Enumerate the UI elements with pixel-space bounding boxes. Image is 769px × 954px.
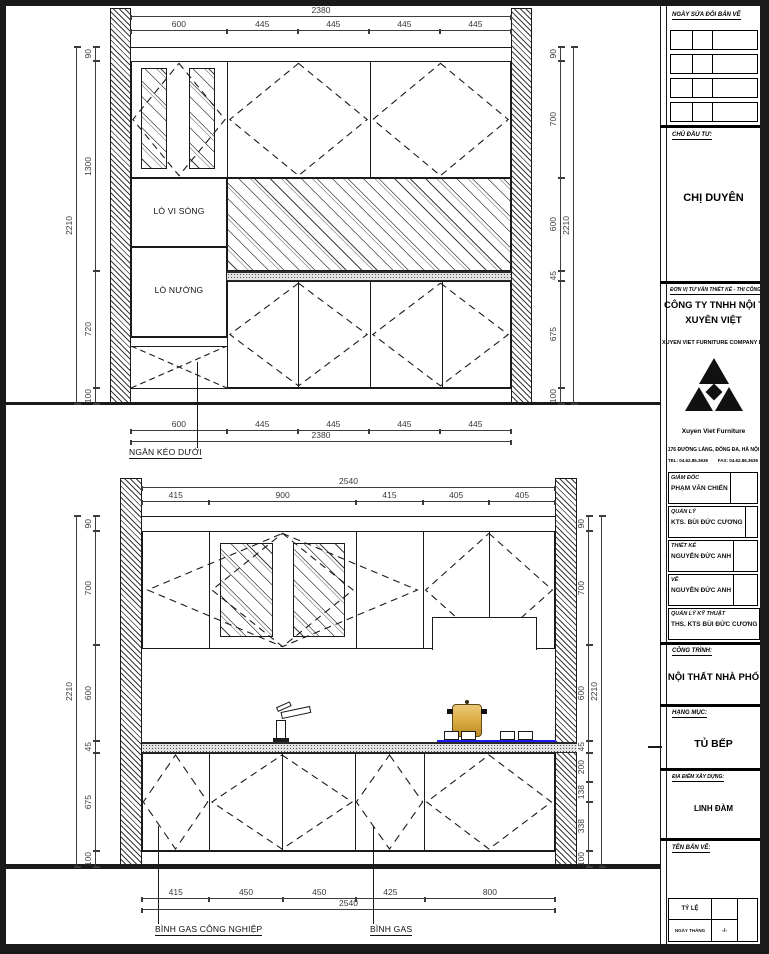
dim-value: 90 <box>546 47 560 61</box>
section-divider <box>660 125 760 128</box>
revision-cell <box>693 78 713 98</box>
company-name-en: XUYEN VIET FURNITURE COMPANY LIMITED <box>662 340 765 346</box>
staff-role-cell: THIẾT KẾNGUYỄN ĐỨC ANH <box>668 540 734 572</box>
countertop <box>142 742 577 753</box>
revision-header: NGÀY SỬA ĐỔI BẢN VẼ <box>672 12 741 20</box>
gas-burner-grate <box>461 731 476 740</box>
drawing-name-label: TÊN BẢN VẼ: <box>672 845 710 853</box>
left-wall <box>110 8 131 404</box>
gas-burner-grate <box>444 731 459 740</box>
gas-burner-grate <box>500 731 515 740</box>
revision-cell <box>693 30 713 50</box>
dim-value: 600 <box>81 645 95 741</box>
revision-row <box>670 54 758 74</box>
dim-value: 445 <box>440 19 511 30</box>
staff-role-cell: QUẢN LÝ KỸ THUẬTTHS. KTS BÙI ĐỨC CƯƠNG <box>668 608 760 640</box>
dim-value: 445 <box>227 19 298 30</box>
staff-role-cell: VẼNGUYỄN ĐỨC ANH <box>668 574 734 606</box>
titleblock-border <box>660 6 661 944</box>
door-swing-diamond <box>355 753 424 851</box>
dim-value: 675 <box>546 281 560 388</box>
dim-value: 405 <box>489 490 555 501</box>
date-value-cell: -/- <box>712 920 738 942</box>
dim-value: 600 <box>131 19 227 30</box>
door-swing-diamond <box>227 61 370 178</box>
staff-role: VẼ <box>671 577 731 583</box>
section-divider <box>660 838 760 841</box>
dim-row-total-width-bottom: 2540 <box>142 897 555 910</box>
signature-cell <box>731 472 758 504</box>
drawing-number-cell <box>738 898 758 942</box>
dim-value: 100 <box>546 388 560 404</box>
dim-col-right: 90 700 600 45 200 138 338 100 <box>574 516 589 867</box>
revision-cell <box>670 78 693 98</box>
dim-value: 90 <box>81 47 95 61</box>
company-name: CÔNG TY TNHH NỘI THẤT <box>664 300 763 311</box>
section-divider <box>660 768 760 771</box>
staff-row: QUẢN LÝKTS. BÙI ĐỨC CƯƠNG <box>668 506 758 538</box>
right-wall <box>511 8 532 404</box>
reference-tick <box>648 746 662 748</box>
plinth-line <box>131 388 511 389</box>
revision-cell <box>670 102 693 122</box>
ceiling-line <box>131 47 511 48</box>
date-label: NGÀY THÁNG <box>668 920 712 942</box>
client-name: CHỊ DUYÊN <box>667 192 760 204</box>
door-swing-diamond <box>370 281 511 388</box>
revision-row <box>670 30 758 50</box>
door-swing-diamond <box>424 753 554 851</box>
dim-col-left: 90 700 600 45 675 100 <box>81 516 96 867</box>
signature-cell <box>734 574 758 606</box>
revision-cell <box>713 78 758 98</box>
door-swing-diamond <box>370 61 511 178</box>
signature-cell <box>734 540 758 572</box>
dim-value: 2210 <box>560 47 573 404</box>
dim-value: 700 <box>81 531 95 645</box>
sheet-frame-right <box>760 0 769 954</box>
staff-role: QUẢN LÝ <box>671 509 743 515</box>
oven-label: LÒ NƯỚNG <box>131 285 227 295</box>
countertop <box>227 271 511 281</box>
staff-row: THIẾT KẾNGUYỄN ĐỨC ANH <box>668 540 758 572</box>
dim-value: 720 <box>81 271 95 388</box>
dim-value: 900 <box>209 490 355 501</box>
staff-role-cell: QUẢN LÝKTS. BÙI ĐỨC CƯƠNG <box>668 506 746 538</box>
revision-cell <box>693 102 713 122</box>
hood-notch <box>432 617 537 650</box>
dim-value: 2210 <box>62 516 76 867</box>
dim-value: 2210 <box>62 47 76 404</box>
dim-value: 445 <box>369 19 440 30</box>
staff-role-cell: GIÁM ĐỐCPHẠM VĂN CHIẾN <box>668 472 731 504</box>
shelf-line <box>131 337 227 338</box>
sheet-frame-bottom <box>0 944 769 954</box>
category-label: HẠNG MỤC: <box>672 710 707 718</box>
staff-role: GIÁM ĐỐC <box>671 475 728 481</box>
dim-value: 200 <box>574 753 588 782</box>
drawer-cross <box>131 346 227 388</box>
dim-value: 100 <box>81 388 95 404</box>
dim-value: 445 <box>298 19 369 30</box>
plinth-line <box>142 851 555 852</box>
section-divider <box>660 704 760 707</box>
staff-role: THIẾT KẾ <box>671 543 731 549</box>
company-logo <box>685 358 743 414</box>
scale-label: TỶ LỆ <box>668 898 712 920</box>
revision-cell <box>670 30 693 50</box>
door-swing-diamond <box>209 531 356 649</box>
drawing-sheet: 2380 600 445 445 445 445 LÒ VI SÓNG LÒ N… <box>0 0 769 954</box>
pot-handle <box>447 709 453 714</box>
pot-handle <box>481 709 487 714</box>
staff-row: GIÁM ĐỐCPHẠM VĂN CHIẾN <box>668 472 758 504</box>
microwave-label: LÒ VI SÓNG <box>131 206 227 216</box>
dim-row-segments-top: 415 900 415 405 405 <box>142 489 555 502</box>
consultant-label: ĐƠN VỊ TƯ VẤN THIẾT KẾ - THI CÔNG <box>670 287 761 295</box>
category-name: TỦ BẾP <box>667 738 760 750</box>
dim-value: 100 <box>574 851 588 867</box>
drawer-callout-label: NGĂN KÉO DƯỚI <box>129 447 202 459</box>
dim-value: 2380 <box>131 5 511 16</box>
door-swing-diamond <box>142 753 209 851</box>
revision-cell <box>670 54 693 74</box>
ceiling-line <box>142 516 555 517</box>
dim-value: 415 <box>356 490 423 501</box>
company-name: XUYÊN VIỆT <box>664 315 763 326</box>
company-fax: FAX: 04.62.86.3636 <box>714 458 758 463</box>
staff-row: QUẢN LÝ KỸ THUẬTTHS. KTS BÙI ĐỨC CƯƠNG <box>668 608 758 640</box>
dim-col-total-left: 2210 <box>62 47 77 404</box>
left-wall <box>120 478 142 867</box>
staff-row: VẼNGUYỄN ĐỨC ANH <box>668 574 758 606</box>
scale-date-table: TỶ LỆ NGÀY THÁNG -/- <box>668 898 758 942</box>
section-divider <box>660 281 760 284</box>
staff-name: NGUYỄN ĐỨC ANH <box>671 553 731 560</box>
dim-row-total-width-bottom: 2380 <box>131 429 511 442</box>
staff-name: THS. KTS BÙI ĐỨC CƯƠNG <box>671 621 757 628</box>
location-label: ĐỊA ĐIỂM XÂY DỰNG: <box>672 774 724 782</box>
revision-cell <box>713 30 758 50</box>
glass-panel-area <box>227 178 511 271</box>
dim-value: 2210 <box>588 516 601 867</box>
gas-industrial-callout-label: BÌNH GAS CÔNG NGHIỆP <box>155 924 262 936</box>
leader-line <box>158 826 159 924</box>
revision-row <box>670 78 758 98</box>
dim-col-right: 90 700 600 45 675 100 <box>546 47 561 404</box>
dim-value: 2540 <box>142 898 555 909</box>
dim-value: 405 <box>423 490 489 501</box>
dim-value: 100 <box>81 851 95 867</box>
door-swing-diamond <box>209 753 355 851</box>
scale-value-cell <box>712 898 738 920</box>
staff-name: KTS. BÙI ĐỨC CƯƠNG <box>671 519 743 526</box>
dim-value: 415 <box>142 490 209 501</box>
dim-value: 600 <box>546 178 560 271</box>
dim-col-total-right: 2210 <box>588 516 602 867</box>
dim-value: 700 <box>546 61 560 178</box>
leader-line <box>197 362 198 448</box>
section-divider <box>660 642 760 645</box>
logo-triangle <box>699 358 729 384</box>
pot-lid-knob <box>465 700 469 704</box>
dim-col-total-right: 2210 <box>560 47 574 404</box>
door-swing-diamond <box>227 281 370 388</box>
company-address: 176 ĐƯỜNG LÁNG, ĐỐNG ĐA, HÀ NỘI <box>664 447 763 453</box>
dim-col-left: 90 1300 720 100 <box>81 47 96 404</box>
dim-value: 338 <box>574 802 588 851</box>
revision-cell <box>693 54 713 74</box>
revision-cell <box>713 54 758 74</box>
project-name: NỘI THẤT NHÀ PHỐ <box>662 672 765 683</box>
revision-row <box>670 102 758 122</box>
dim-value: 90 <box>81 516 95 531</box>
dim-row-total-width-top: 2540 <box>142 475 555 488</box>
sheet-frame-left <box>0 0 6 954</box>
dim-value: 700 <box>574 531 588 645</box>
dim-value: 2540 <box>142 476 555 487</box>
dim-value: 90 <box>574 516 588 531</box>
staff-role: QUẢN LÝ KỸ THUẬT <box>671 611 757 617</box>
dim-value: 600 <box>574 645 588 741</box>
project-label: CÔNG TRÌNH: <box>672 648 712 656</box>
gas-burner-grate <box>518 731 533 740</box>
staff-name: NGUYỄN ĐỨC ANH <box>671 587 731 594</box>
location-name: LINH ĐÀM <box>667 804 760 813</box>
revision-cell <box>713 102 758 122</box>
door-swing-diamond <box>131 61 227 178</box>
leader-line <box>373 826 374 924</box>
dim-value: 675 <box>81 753 95 851</box>
sheet-frame-top <box>0 0 769 6</box>
gas-callout-label: BÌNH GAS <box>370 924 412 936</box>
staff-name: PHẠM VĂN CHIẾN <box>671 485 728 492</box>
dim-value: 2380 <box>131 430 511 441</box>
dim-col-total-left: 2210 <box>62 516 77 867</box>
dim-value: 1300 <box>81 61 95 271</box>
dim-value: 138 <box>574 782 588 802</box>
client-label: CHỦ ĐẦU TƯ: <box>672 132 712 140</box>
dim-row-segments-top: 600 445 445 445 445 <box>131 18 511 31</box>
signature-cell <box>746 506 758 538</box>
company-tel: TEL: 04.62.86.3636 <box>668 458 714 463</box>
logo-caption: Xuyen Viet Furniture <box>667 428 760 435</box>
